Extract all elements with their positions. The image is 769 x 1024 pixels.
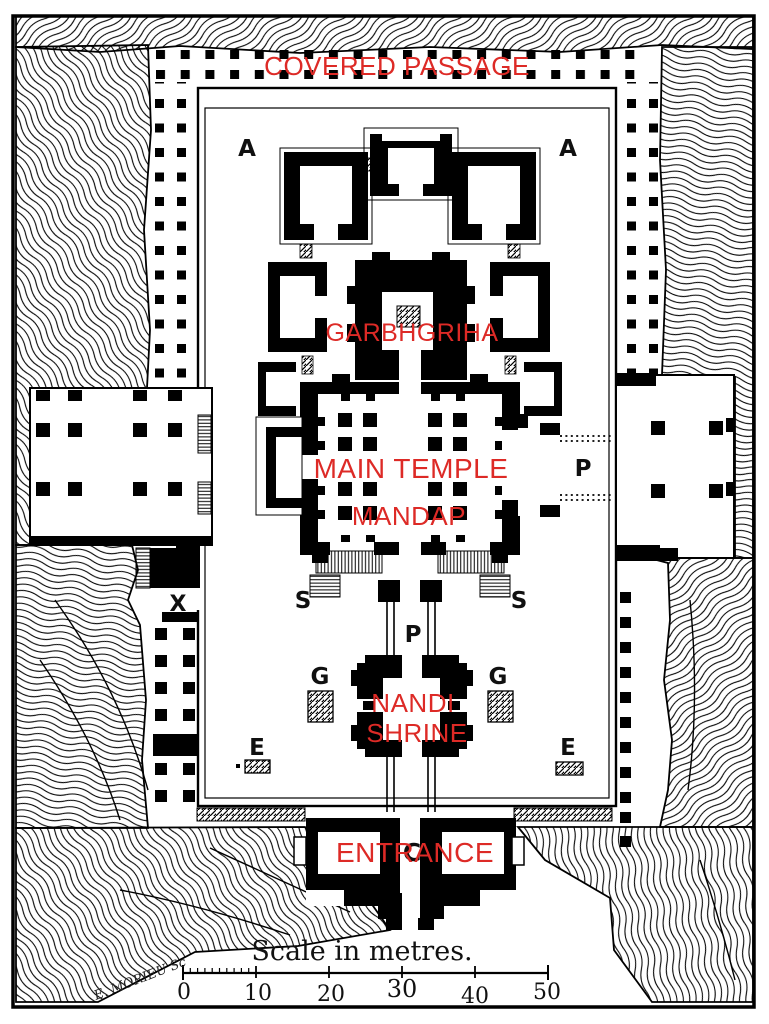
- colonnade-east-lower: [620, 592, 631, 807]
- pillar: [651, 421, 665, 435]
- pillar: [428, 413, 442, 427]
- scale-tick-50: 50: [533, 980, 561, 1005]
- pillar: [428, 437, 442, 451]
- label-nandi: NANDI: [371, 688, 454, 718]
- bridge-connector: [505, 356, 516, 374]
- letter-a-west: A: [238, 136, 256, 162]
- letter-p-south: P: [405, 622, 422, 648]
- scale-tick-40: 40: [461, 984, 489, 1009]
- scale-caption: Scale in metres.: [251, 936, 472, 967]
- pillar: [168, 423, 182, 437]
- marker-g-east: [488, 691, 513, 722]
- pillar: [133, 423, 147, 437]
- scale-tick-10: 10: [244, 981, 272, 1006]
- pillar: [363, 482, 377, 496]
- porch-jamb: [420, 580, 442, 602]
- pillar: [428, 482, 442, 496]
- letter-s-east: S: [511, 588, 528, 614]
- stair-west-steps: [310, 575, 340, 597]
- stair-east-steps: [480, 575, 510, 597]
- gate-passage: [400, 810, 420, 928]
- letter-g-east: G: [489, 664, 508, 690]
- east-pier: [620, 812, 631, 823]
- bridge-connector: [450, 158, 460, 171]
- bridge-connector: [302, 356, 313, 374]
- pillar: [453, 413, 467, 427]
- pillar: [133, 482, 147, 496]
- west-pillared-hall: [30, 388, 212, 545]
- porch-jamb: [378, 580, 400, 602]
- temple-plan-figure: A A P S S X P G G E E C COVERED PASSAGE …: [0, 0, 769, 1024]
- label-covered-passage: COVERED PASSAGE: [264, 51, 530, 81]
- colonnade-west-columns: [155, 82, 186, 388]
- west-balcony: [256, 417, 302, 515]
- pillar: [363, 437, 377, 451]
- bridge-connector: [362, 158, 372, 171]
- label-mandap: MANDAP: [352, 501, 466, 531]
- bridge-connector: [300, 244, 312, 258]
- engraved-temple-plan: A A P S S X P G G E E C COVERED PASSAGE …: [0, 0, 769, 1024]
- pillar: [168, 482, 182, 496]
- west-stair: [198, 482, 211, 514]
- west-gallery-cross-block: [153, 734, 198, 756]
- pillar: [338, 413, 352, 427]
- pillar: [709, 484, 723, 498]
- south-wall-west: [197, 808, 305, 821]
- east-pillared-hall: [616, 373, 734, 561]
- marker-g-west: [308, 691, 333, 722]
- pillar: [338, 437, 352, 451]
- bridge-connector: [508, 244, 520, 258]
- pillar: [36, 482, 50, 496]
- pillar: [68, 423, 82, 437]
- letter-s-west: S: [295, 588, 312, 614]
- east-porch: [518, 423, 560, 517]
- letter-x: X: [170, 592, 187, 617]
- gate-pillar-west: [294, 837, 306, 865]
- hall-south-bar: [616, 548, 678, 561]
- scale-tick-30: 30: [387, 975, 418, 1003]
- letter-e-east: E: [560, 735, 576, 761]
- pillar: [338, 506, 352, 520]
- stair-west: [316, 551, 382, 573]
- label-garbhgriha: GARBHGRIHA: [325, 319, 498, 347]
- rock-stair: [136, 548, 150, 588]
- letter-p-east: P: [575, 456, 592, 482]
- colonnade-east-columns: [627, 82, 658, 375]
- pillar: [36, 423, 50, 437]
- gate-pillar-east: [512, 837, 524, 865]
- south-door: [399, 542, 421, 555]
- pillar: [453, 482, 467, 496]
- pillar: [453, 437, 467, 451]
- pillar: [68, 482, 82, 496]
- pillar: [338, 482, 352, 496]
- pillar: [363, 413, 377, 427]
- scale-tick-0: 0: [177, 980, 191, 1005]
- stair-east: [438, 551, 504, 573]
- marker-e-east: [556, 762, 583, 775]
- scale-tick-20: 20: [317, 982, 345, 1007]
- marker-e-west: [245, 760, 270, 773]
- letter-g-west: G: [311, 664, 330, 690]
- pillar: [709, 421, 723, 435]
- letter-a-east: A: [559, 136, 577, 162]
- marker-dot: [236, 764, 240, 768]
- south-wall-east: [514, 808, 612, 821]
- letter-e-west: E: [249, 735, 265, 761]
- label-entrance: ENTRANCE: [336, 837, 494, 868]
- label-main-temple: MAIN TEMPLE: [314, 453, 509, 484]
- pillar: [651, 484, 665, 498]
- rock-west-lower: [16, 545, 148, 828]
- west-stair: [198, 415, 211, 453]
- colonnade-west-lower: [155, 628, 195, 806]
- label-shrine: SHRINE: [366, 718, 467, 748]
- east-pier: [620, 836, 631, 847]
